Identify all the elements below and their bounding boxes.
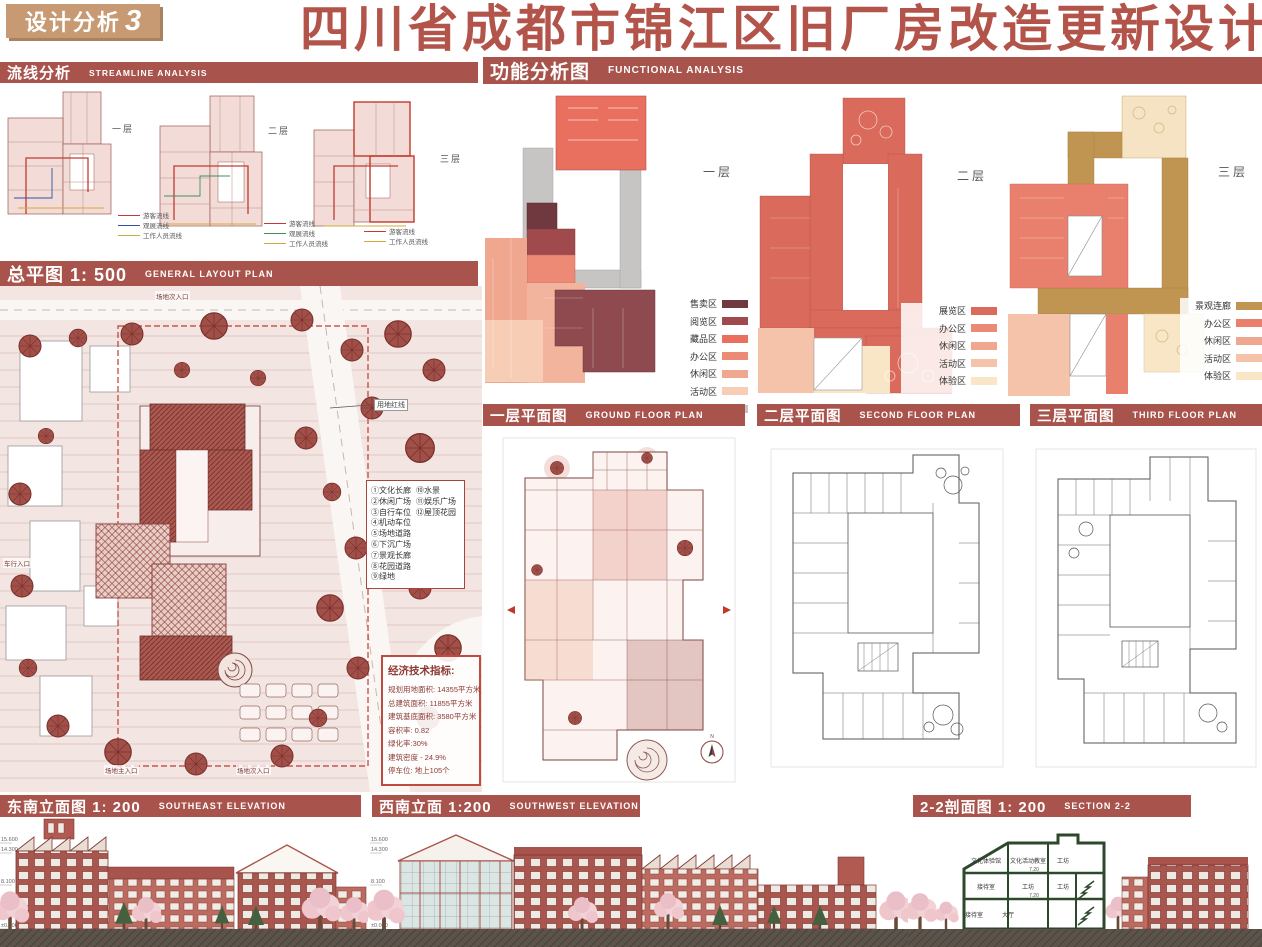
level-mark: 14.300 (1, 847, 18, 853)
legend-chip (722, 317, 748, 325)
section-room-label: 工坊 (1057, 883, 1069, 891)
legend-column-right: ⑩水景 ⑪娱乐广场 ⑫屋顶花园 (416, 486, 456, 583)
level-mark: 8.100 (1, 879, 15, 885)
legend-item: ⑪娱乐广场 (416, 497, 456, 508)
ground-floor-plan-drawing: N (497, 430, 743, 790)
functional-legend-floor2: 展览区 办公区 休闲区 活动区 体验区 (901, 303, 999, 393)
indicators-title: 经济技术指标: (388, 663, 474, 678)
legend-item: ⑫屋顶花园 (416, 508, 456, 519)
legend-label: 工作人员流线 (289, 238, 328, 248)
analysis-badge: 设计分析 3 (6, 4, 160, 38)
floorplan3-header-bar: 三层平面图 THIRD FLOOR PLAN (1030, 404, 1262, 426)
general-plan-header-bar: 总平图 1: 500 GENERAL LAYOUT PLAN (0, 261, 478, 286)
legend-label: 活动区 (690, 385, 717, 398)
section-room-label: 接待室 (965, 911, 983, 919)
legend-label: 售卖区 (690, 297, 717, 310)
legend-item: ②休闲广场 (371, 497, 411, 508)
economic-indicators-box: 经济技术指标: 规划用地面积: 14355平方米 总建筑面积: 11855平方米… (381, 655, 481, 786)
legend-item: ⑥下沉广场 (371, 540, 411, 551)
legend-label: 景观连廊 (1195, 299, 1231, 312)
legend-chip (722, 370, 748, 378)
indicator-row: 容积率: 0.82 (388, 724, 474, 738)
legend-item: ④机动车位 (371, 518, 411, 529)
streamline-subtitle: STREAMLINE ANALYSIS (89, 68, 208, 78)
plan-north-compass: N (701, 734, 723, 763)
legend-chip (1236, 319, 1262, 327)
legend-label: 活动区 (1204, 352, 1231, 365)
legend-label: 工作人员流线 (389, 236, 428, 246)
section-2-2-drawing: 文化体验馆 文化活动教室 工坊 接待室 工坊 工坊 大厅 接待室 7.20 7.… (908, 817, 1262, 947)
indicator-row: 总建筑面积: 11855平方米 (388, 697, 474, 711)
design-presentation-board: 设计分析 3 四川省成都市锦江区旧厂房改造更新设计 流线分析 STREAMLIN… (0, 0, 1262, 947)
functional-subtitle: FUNCTIONAL ANALYSIS (608, 65, 744, 76)
third-floor-plan-drawing (1030, 443, 1262, 773)
page-title: 四川省成都市锦江区旧厂房改造更新设计 (300, 0, 1262, 58)
legend-chip (971, 307, 997, 315)
legend-label: 办公区 (1204, 317, 1231, 330)
streamline-plan-floor3 (314, 102, 414, 226)
boundary-line-label: 用地红线 (374, 399, 408, 411)
streamline-floor1-label: 一层 (112, 122, 134, 135)
section-room-label: 文化体验馆 (971, 857, 1001, 865)
streamline-plan-floor2 (160, 96, 262, 226)
legend-chip (1236, 302, 1262, 310)
floorplan3-subtitle: THIRD FLOOR PLAN (1133, 410, 1238, 420)
level-mark: 14.300 (371, 847, 388, 853)
entrance-label: 场地主入口 (104, 765, 139, 775)
legend-item: ⑦景观长廊 (371, 551, 411, 562)
legend-label: 藏品区 (690, 332, 717, 345)
legend-label: 体验区 (1204, 369, 1231, 382)
legend-chip (971, 377, 997, 385)
legend-label: 休闲区 (939, 339, 966, 352)
entrance-label: 场地次入口 (236, 765, 271, 775)
second-floor-plan-drawing (763, 443, 1011, 773)
legend-label: 工作人员流线 (143, 230, 182, 240)
floorplan2-title: 二层平面图 (757, 405, 842, 426)
floorplan1-title: 一层平面图 (483, 405, 568, 426)
functional-floor1-label: 一层 (703, 163, 733, 180)
legend-label: 休闲区 (1204, 334, 1231, 347)
southeast-elevation-drawing: 15.600 14.300 8.100 4.500 ±0.000 (0, 817, 368, 947)
legend-label: 观展流线 (143, 220, 169, 230)
streamline-floor3-label: 三层 (440, 152, 462, 165)
southeast-elevation-title: 东南立面图 1: 200 (0, 796, 141, 817)
legend-label: 办公区 (690, 350, 717, 363)
section-room-label: 工坊 (1057, 857, 1069, 865)
streamline-plan-floor1 (8, 92, 111, 214)
legend-label: 阅览区 (690, 315, 717, 328)
level-mark: 8.100 (371, 879, 385, 885)
legend-label: 休闲区 (690, 367, 717, 380)
southwest-elevation-drawing: 15.600 14.300 8.100 4.500 ±0.000 (368, 817, 908, 947)
legend-label: 游客流线 (389, 226, 415, 236)
site-plan-legend-box: ①文化长廊 ②休闲广场 ③自行车位 ④机动车位 ⑤场地道路 ⑥下沉广场 ⑦景观长… (366, 480, 465, 589)
legend-chip (1236, 337, 1262, 345)
floorplan1-subtitle: GROUND FLOOR PLAN (586, 410, 704, 420)
legend-chip (722, 387, 748, 395)
section-room-label: 文化活动教室 (1010, 857, 1046, 865)
functional-legend-floor1: 售卖区 阅览区 藏品区 办公区 休闲区 活动区 架空区 (658, 296, 750, 421)
indicator-row: 建筑基底面积: 3580平方米 (388, 710, 474, 724)
legend-chip (1236, 372, 1262, 380)
section-header-bar: 2-2剖面图 1: 200 SECTION 2-2 (913, 795, 1191, 817)
legend-label: 活动区 (939, 357, 966, 370)
floorplan2-header-bar: 二层平面图 SECOND FLOOR PLAN (757, 404, 1020, 426)
functional-floor2-label: 二层 (957, 167, 987, 184)
section-room-label: 接待室 (977, 883, 995, 891)
southeast-elevation-subtitle: SOUTHEAST ELEVATION (159, 801, 286, 811)
streamline-title: 流线分析 (0, 62, 71, 83)
legend-label: 办公区 (939, 322, 966, 335)
legend-item: ⑩水景 (416, 486, 456, 497)
legend-chip (722, 300, 748, 308)
indicator-row: 规划用地面积: 14355平方米 (388, 683, 474, 697)
floorplan2-subtitle: SECOND FLOOR PLAN (860, 410, 977, 420)
general-plan-subtitle: GENERAL LAYOUT PLAN (145, 269, 274, 279)
level-mark: 15.600 (1, 837, 18, 843)
legend-item: ③自行车位 (371, 508, 411, 519)
streamline-legend-floor1: 游客流线 观展流线 工作人员流线 (118, 210, 182, 240)
legend-chip (722, 352, 748, 360)
legend-chip (722, 335, 748, 343)
functional-legend-floor3: 景观连廊 办公区 休闲区 活动区 体验区 (1180, 298, 1262, 388)
southeast-elevation-header-bar: 东南立面图 1: 200 SOUTHEAST ELEVATION (0, 795, 361, 817)
functional-floor3-label: 三层 (1218, 163, 1248, 180)
level-mark: 15.600 (371, 837, 388, 843)
streamline-floor2-label: 二层 (268, 124, 290, 137)
section-level-mark: 7.20 (1029, 867, 1039, 873)
legend-item: ⑤场地道路 (371, 529, 411, 540)
legend-label: 展览区 (939, 304, 966, 317)
legend-label: 游客流线 (143, 210, 169, 220)
section-room-label: 工坊 (1022, 883, 1034, 891)
functional-header-bar: 功能分析图 FUNCTIONAL ANALYSIS (483, 57, 1262, 84)
indicator-row: 停车位: 地上105个 (388, 764, 474, 778)
streamline-header-bar: 流线分析 STREAMLINE ANALYSIS (0, 62, 478, 83)
southwest-elevation-header-bar: 西南立面 1:200 SOUTHWEST ELEVATION (372, 795, 640, 817)
legend-label: 体验区 (939, 374, 966, 387)
entrance-label: 车行入口 (3, 558, 31, 568)
streamline-legend-floor3: 游客流线 工作人员流线 (364, 226, 428, 246)
entrance-label: 场地次入口 (155, 291, 190, 301)
badge-number: 3 (125, 5, 141, 38)
legend-chip (1236, 354, 1262, 362)
legend-column-left: ①文化长廊 ②休闲广场 ③自行车位 ④机动车位 ⑤场地道路 ⑥下沉广场 ⑦景观长… (371, 486, 411, 583)
streamline-legend-floor2: 游客流线 观展流线 工作人员流线 (264, 218, 328, 248)
functional-title: 功能分析图 (483, 57, 590, 84)
legend-item: ⑨绿地 (371, 572, 411, 583)
general-plan-title: 总平图 1: 500 (0, 261, 127, 286)
indicator-row: 建筑密度 - 24.9% (388, 751, 474, 765)
legend-item: ①文化长廊 (371, 486, 411, 497)
section-room-label: 大厅 (1002, 911, 1014, 919)
legend-label: 游客流线 (289, 218, 315, 228)
floorplan3-title: 三层平面图 (1030, 405, 1115, 426)
legend-item: ⑧花园道路 (371, 562, 411, 573)
section-level-mark: 7.20 (1029, 893, 1039, 899)
legend-label: 观展流线 (289, 228, 315, 238)
southwest-elevation-subtitle: SOUTHWEST ELEVATION (510, 801, 639, 811)
legend-chip (971, 324, 997, 332)
floorplan1-header-bar: 一层平面图 GROUND FLOOR PLAN (483, 404, 745, 426)
north-letter: N (710, 734, 714, 740)
badge-text: 设计分析 (25, 5, 121, 37)
legend-chip (971, 342, 997, 350)
indicator-row: 绿化率:30% (388, 737, 474, 751)
section-subtitle: SECTION 2-2 (1064, 801, 1131, 811)
southwest-elevation-title: 西南立面 1:200 (372, 796, 492, 817)
legend-chip (971, 359, 997, 367)
section-title: 2-2剖面图 1: 200 (913, 796, 1046, 817)
